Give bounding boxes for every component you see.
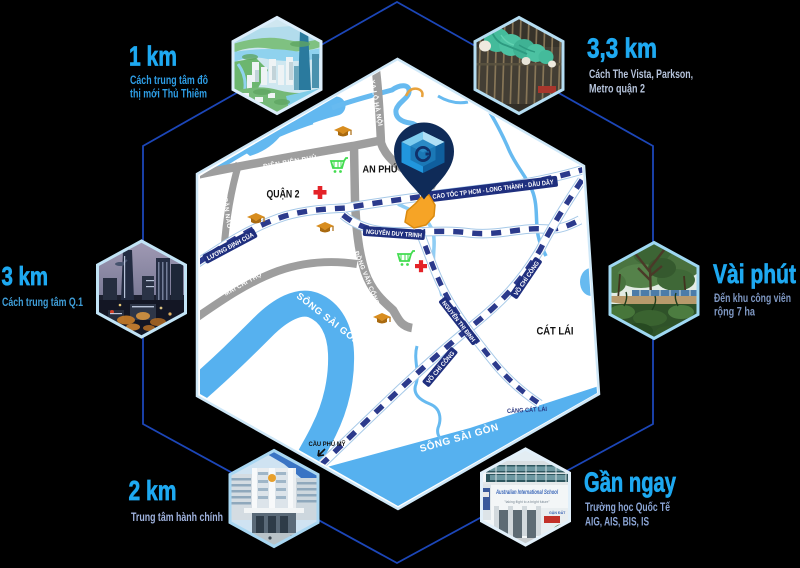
svg-text:1 km: 1 km — [129, 41, 177, 72]
svg-text:Cách trung tâm Q.1: Cách trung tâm Q.1 — [2, 297, 83, 309]
svg-text:Trường học Quốc Tế: Trường học Quốc Tế — [585, 502, 670, 514]
svg-text:Đến khu công viên: Đến khu công viên — [714, 293, 791, 305]
svg-text:Australian International Schoo: Australian International School — [495, 490, 558, 496]
svg-text:Cách trung tâm đô: Cách trung tâm đô — [130, 75, 208, 87]
svg-text:3,3 km: 3,3 km — [587, 33, 657, 64]
svg-text:thị mới Thủ Thiêm: thị mới Thủ Thiêm — [130, 89, 207, 101]
svg-text:rộng 7 ha: rộng 7 ha — [714, 307, 755, 319]
svg-text:AN PHÚ: AN PHÚ — [363, 163, 398, 176]
svg-text:AIG, AIS, BIS, IS: AIG, AIS, BIS, IS — [585, 517, 649, 529]
svg-text:3 km: 3 km — [2, 261, 49, 291]
svg-text:CÁT LÁI: CÁT LÁI — [537, 325, 574, 338]
svg-text:GẬN ĐẤT: GẬN ĐẤT — [549, 510, 566, 515]
svg-text:2 km: 2 km — [129, 475, 177, 506]
svg-text:QUẬN 2: QUẬN 2 — [267, 188, 300, 201]
svg-text:Vài phút: Vài phút — [713, 259, 796, 289]
svg-text:Cách The Vista, Parkson,: Cách The Vista, Parkson, — [589, 69, 693, 81]
svg-text:Metro quận 2: Metro quận 2 — [589, 84, 645, 96]
svg-text:Trung tâm hành chính: Trung tâm hành chính — [131, 512, 223, 524]
svg-text:"taking flight to a bright fut: "taking flight to a bright future" — [504, 500, 550, 504]
svg-text:Gần ngay: Gần ngay — [584, 467, 676, 498]
